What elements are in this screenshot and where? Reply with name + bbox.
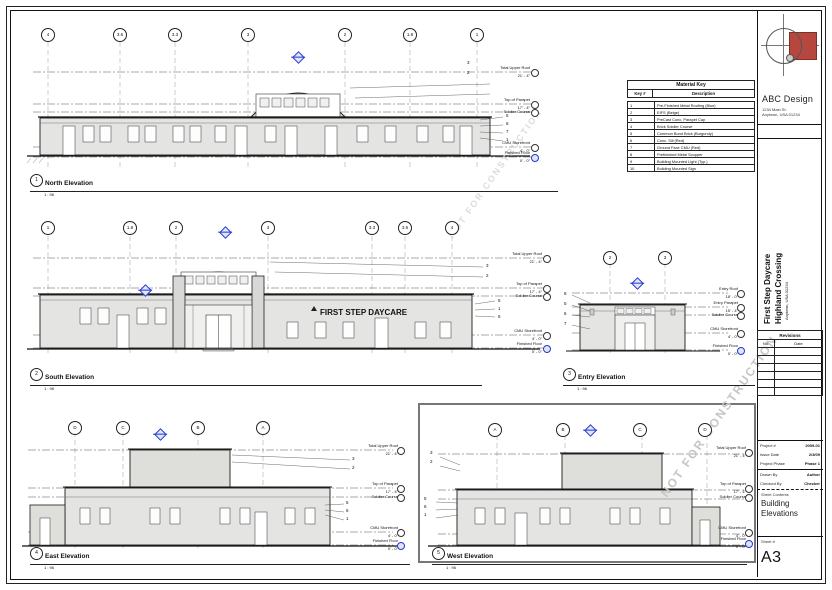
material-key-row: 3PreCast Conc. Parapet Cap <box>628 116 755 123</box>
level-name: Entry Roof <box>676 286 738 292</box>
level-name: Finished Floor <box>480 341 542 347</box>
level-head-icon <box>737 330 745 338</box>
grid-bubble: C <box>633 423 647 437</box>
revision-row <box>758 356 823 364</box>
level-name: Finished Floor <box>336 538 398 544</box>
firm-logo-dot <box>786 54 794 62</box>
keynote-tag: 7 <box>506 129 509 135</box>
level-name: Total Upper Roof <box>684 445 746 451</box>
building-outline <box>457 490 692 545</box>
view-number: 5 <box>432 547 445 560</box>
level-name: CMU Storefront <box>676 326 738 332</box>
view-scale: 1 : 96 <box>44 386 482 391</box>
level-head-icon <box>397 494 405 502</box>
key-desc: Pre-Finished Metal Roofing (Blue) <box>655 102 755 109</box>
keynote-tag: 3 <box>352 456 355 462</box>
drawn-by-label: Drawn By <box>757 470 777 479</box>
level-name: Finished Floor <box>468 150 530 156</box>
level-head-icon <box>745 485 753 493</box>
grid-bubble: 3.6 <box>113 28 127 42</box>
level-head-icon <box>397 447 405 455</box>
sheet-contents-value: Building Elevations <box>761 499 819 519</box>
view-title-entry: 3Entry Elevation 1 : 96 <box>563 366 755 391</box>
titleblock-rule <box>758 124 822 125</box>
view-number: 3 <box>563 368 576 381</box>
grid-bubble: D <box>68 421 82 435</box>
issue-date-label: Issue Date <box>757 450 779 459</box>
key-num: 2 <box>628 109 655 116</box>
keynote-tag: 7 <box>564 321 567 327</box>
info-phase: Project Phase Phase 1 <box>757 459 823 468</box>
revisions-col-no: No. <box>758 340 775 348</box>
upper-roof-block <box>562 454 662 490</box>
level-name: CMU Storefront <box>468 140 530 146</box>
keynote-tag: 3 <box>467 60 470 66</box>
grid-bubble: 1 <box>470 28 484 42</box>
material-key-row: 4Brick Soldier Course <box>628 123 755 130</box>
material-key-row: 8Prefinished Metal Scupper <box>628 151 755 158</box>
key-num: 10 <box>628 165 655 172</box>
grid-bubble: 4 <box>445 221 459 235</box>
keynote-tag: 6 <box>564 311 567 317</box>
titleblock-divider <box>757 11 758 577</box>
grid-bubble: 3 <box>261 221 275 235</box>
grid-bubble: 1.8 <box>403 28 417 42</box>
keynote-tag: 5 <box>506 113 509 119</box>
level-value: 21' - 4" <box>336 451 398 457</box>
revisions-title: Revisions <box>758 331 823 340</box>
project-number-label: Project # <box>757 441 776 450</box>
key-desc: Common Bond Brick (Burgundy) <box>655 130 755 137</box>
keynote-tag: 8 <box>564 291 567 297</box>
key-num: 3 <box>628 116 655 123</box>
phase-value: Phase 1 <box>805 459 823 468</box>
level-name: Total Upper Roof <box>336 443 398 449</box>
level-head-icon <box>531 144 539 152</box>
level-head-icon <box>745 494 753 502</box>
project-number-value: 2009-01 <box>805 441 823 450</box>
sheet-number-label: Sheet # <box>761 539 775 544</box>
level-name: Soldier Course <box>684 494 746 500</box>
level-name: Finished Floor <box>684 536 746 542</box>
level-name: Total Upper Roof <box>480 251 542 257</box>
info-drawn-by: Drawn By Author <box>757 470 823 479</box>
keynote-tag: 5 <box>498 298 501 304</box>
revisions-col-date: Date <box>775 340 823 348</box>
keynote-tag: 2 <box>467 70 470 76</box>
view-title-east: 4East Elevation 1 : 96 <box>30 545 410 570</box>
view-number: 1 <box>30 174 43 187</box>
drawing-sheet: { "sheet": { "watermark": "NOT FOR CONST… <box>0 0 832 590</box>
drawn-by-value: Author <box>807 470 823 479</box>
level-name: Top of Parapet <box>480 281 542 287</box>
grid-bubble: 3 <box>658 251 672 265</box>
material-key-table: Material Key Key # Description 1Pre-Fini… <box>627 80 755 172</box>
keynote-tag: 2 <box>486 273 489 279</box>
keynote-tag: 2 <box>430 459 433 465</box>
grid-bubble: 2 <box>338 28 352 42</box>
keynote-tag: 1 <box>498 306 501 312</box>
grid-bubble: 3.6 <box>398 221 412 235</box>
keynote-tag: 1 <box>424 512 427 518</box>
level-head-icon[interactable] <box>531 154 539 162</box>
key-num: 7 <box>628 144 655 151</box>
level-head-icon[interactable] <box>737 347 745 355</box>
sheet-number: A3 <box>761 549 782 567</box>
level-name: Soldier Course <box>468 109 530 115</box>
info-issue-date: Issue Date 2/3/09 <box>757 450 823 459</box>
revision-row <box>758 348 823 356</box>
revisions-table: Revisions No. Date <box>757 330 823 396</box>
key-desc: Building Mounted Light (Typ.) <box>655 158 755 165</box>
key-num: 5 <box>628 130 655 137</box>
level-name: Soldier Course <box>480 293 542 299</box>
level-name: Top of Parapet <box>684 481 746 487</box>
key-desc: Ground Face CMU (Red) <box>655 144 755 151</box>
grid-bubble: 3 <box>241 28 255 42</box>
view-number: 2 <box>30 368 43 381</box>
level-name: Entry Parapet <box>676 300 738 306</box>
revision-row <box>758 372 823 380</box>
material-key-row: 1Pre-Finished Metal Roofing (Blue) <box>628 102 755 109</box>
grid-bubble: 2 <box>603 251 617 265</box>
level-name: Total Upper Roof <box>468 65 530 71</box>
level-head-icon[interactable] <box>543 345 551 353</box>
material-key-row: 2EIFS (Beige) <box>628 109 755 116</box>
key-num: 4 <box>628 123 655 130</box>
material-key-col-desc: Description <box>653 90 755 98</box>
level-value: 0' - 0" <box>468 158 530 164</box>
level-head-icon <box>543 293 551 301</box>
grid-bubble: 2 <box>169 221 183 235</box>
grid-bubble: A <box>256 421 270 435</box>
titleblock-rule-dashed <box>757 489 823 490</box>
grid-bubble: A <box>488 423 502 437</box>
key-num: 6 <box>628 137 655 144</box>
key-desc: PreCast Conc. Parapet Cap <box>655 116 755 123</box>
grid-bubble: C <box>116 421 130 435</box>
level-name: Finished Floor <box>676 343 738 349</box>
grid-bubble: 1.8 <box>123 221 137 235</box>
checked-by-label: Checked By <box>757 479 782 488</box>
level-head-icon <box>745 529 753 537</box>
level-head-icon <box>397 529 405 537</box>
view-title-text: North Elevation <box>45 180 93 187</box>
checked-by-value: Checker <box>804 479 823 488</box>
view-title-west: 5West Elevation 1 : 96 <box>432 545 747 570</box>
material-key-row: 9Building Mounted Light (Typ.) <box>628 158 755 165</box>
view-scale: 1 : 96 <box>44 192 558 197</box>
material-key-row: 5Common Bond Brick (Burgundy) <box>628 130 755 137</box>
keynote-tag: 6 <box>498 314 501 320</box>
revision-row <box>758 380 823 388</box>
keynote-tag: 5 <box>424 496 427 502</box>
level-head-icon <box>543 285 551 293</box>
keynote-tag: 1 <box>506 137 509 143</box>
view-number: 4 <box>30 547 43 560</box>
project-name-line2: Highland Crossing <box>773 152 784 324</box>
grid-bubble: 4 <box>41 28 55 42</box>
level-value: 21' - 4" <box>480 259 542 265</box>
material-key-row: 6Conc. Sill (Red) <box>628 137 755 144</box>
key-desc: Prefinished Metal Scupper <box>655 151 755 158</box>
info-checked-by: Checked By Checker <box>757 479 823 488</box>
key-desc: EIFS (Beige) <box>655 109 755 116</box>
level-name: CMU Storefront <box>336 525 398 531</box>
keynote-tag: 6 <box>506 121 509 127</box>
view-scale: 1 : 96 <box>577 386 755 391</box>
keynote-tag: 5 <box>564 301 567 307</box>
keynote-tag: 2 <box>352 465 355 471</box>
view-title-text: East Elevation <box>45 553 89 560</box>
grid-bubble: D <box>698 423 712 437</box>
keynote-tag: 6 <box>424 504 427 510</box>
titleblock-rule <box>757 536 823 537</box>
level-head-icon <box>531 101 539 109</box>
key-desc: Brick Soldier Course <box>655 123 755 130</box>
key-desc: Conc. Sill (Red) <box>655 137 755 144</box>
level-name: Soldier Course <box>676 312 738 318</box>
keynote-tag: 3 <box>430 450 433 456</box>
level-name: Top of Parapet <box>336 481 398 487</box>
grid-bubble: 3.3 <box>365 221 379 235</box>
view-title-text: Entry Elevation <box>578 374 625 381</box>
project-name-line1: First Step Daycare <box>762 152 773 324</box>
material-key-row: 10Building Mounted Sign <box>628 165 755 172</box>
sheet-contents-label: Sheet Contents <box>761 492 789 497</box>
info-project: Project # 2009-01 <box>757 441 823 450</box>
view-title-text: South Elevation <box>45 374 94 381</box>
keynote-tag: 5 <box>346 500 349 506</box>
key-num: 9 <box>628 158 655 165</box>
keynote-tag: 1 <box>346 516 349 522</box>
level-value: 0' - 0" <box>676 351 738 357</box>
key-desc: Building Mounted Sign <box>655 165 755 172</box>
key-num: 1 <box>628 102 655 109</box>
grid-bubble: B <box>556 423 570 437</box>
level-value: 4' - 0" <box>676 334 738 340</box>
view-title-north: 1North Elevation 1 : 96 <box>30 172 558 197</box>
issue-date-value: 2/3/09 <box>809 450 823 459</box>
phase-label: Project Phase <box>757 459 785 468</box>
view-scale: 1 : 96 <box>446 565 747 570</box>
material-key-row: 7Ground Face CMU (Red) <box>628 144 755 151</box>
project-address: Anytown, USA 01234 <box>784 152 790 320</box>
view-title-south: 2South Elevation 1 : 96 <box>30 366 482 391</box>
level-head-icon <box>737 304 745 312</box>
material-key-title: Material Key <box>628 81 755 90</box>
keynote-tag: 3 <box>486 263 489 269</box>
grid-bubble: B <box>191 421 205 435</box>
firm-logo-circle <box>766 28 802 64</box>
level-head-icon <box>543 332 551 340</box>
key-num: 8 <box>628 151 655 158</box>
level-name: CMU Storefront <box>480 328 542 334</box>
grid-bubble: 3.3 <box>168 28 182 42</box>
upper-roof-block <box>130 450 230 488</box>
firm-name: ABC Design <box>762 94 820 104</box>
level-head-icon <box>531 69 539 77</box>
level-value: 0' - 0" <box>480 349 542 355</box>
level-head-icon <box>531 109 539 117</box>
level-head-icon <box>543 255 551 263</box>
view-scale: 1 : 96 <box>44 565 410 570</box>
view-title-text: West Elevation <box>447 553 493 560</box>
material-key-col-key: Key # <box>628 90 653 98</box>
project-name-block: First Step Daycare Highland Crossing Any… <box>762 152 820 324</box>
keynote-tag: 6 <box>346 508 349 514</box>
level-value: 21' - 4" <box>468 73 530 79</box>
level-name: CMU Storefront <box>684 525 746 531</box>
revision-row <box>758 364 823 372</box>
grid-bubble: 1 <box>41 221 55 235</box>
firm-address-line2: Anytown, USA 01234 <box>762 112 820 117</box>
titleblock-rule <box>758 138 822 139</box>
revision-row <box>758 388 823 396</box>
level-head-icon <box>737 290 745 298</box>
level-value: 21' - 4" <box>684 453 746 459</box>
level-head-icon <box>397 485 405 493</box>
level-head-icon <box>745 449 753 457</box>
building-sign-text: FIRST STEP DAYCARE <box>320 308 408 317</box>
level-name: Top of Parapet <box>468 97 530 103</box>
level-head-icon <box>737 312 745 320</box>
